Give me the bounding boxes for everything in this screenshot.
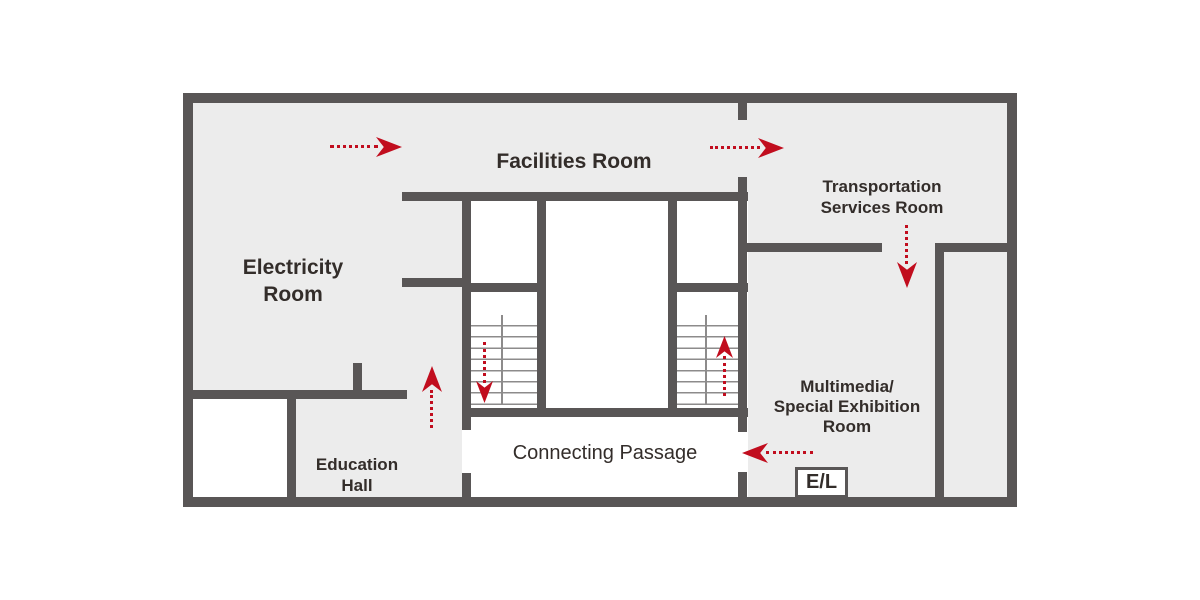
- label-text: Facilities Room: [434, 149, 714, 175]
- wall: [462, 192, 471, 430]
- label-text: Services Room: [782, 197, 982, 218]
- route-arrow-corridor-north: [422, 366, 442, 428]
- label-text: Electricity: [193, 254, 393, 281]
- wall: [537, 192, 546, 417]
- label-text: Room: [757, 417, 937, 437]
- label-education-hall: Education Hall: [287, 454, 427, 496]
- wall: [1007, 93, 1017, 507]
- label-electricity-room: Electricity Room: [193, 254, 393, 308]
- wall: [462, 408, 748, 417]
- storage-room-area: [193, 399, 287, 497]
- wall: [462, 473, 471, 497]
- wall: [353, 363, 362, 399]
- left-staircase-stringer: [501, 315, 503, 405]
- route-arrow-to-transportation-east: [710, 138, 784, 158]
- route-arrow-into-passage-west: [742, 443, 813, 463]
- wall: [738, 177, 747, 432]
- label-text: Room: [193, 281, 393, 308]
- elevator-label: E/L: [806, 471, 837, 494]
- wall: [668, 283, 748, 292]
- label-text: Hall: [287, 475, 427, 496]
- wall: [747, 243, 882, 252]
- wall: [183, 390, 407, 399]
- label-text: Special Exhibition: [757, 397, 937, 417]
- wall: [183, 497, 1017, 507]
- wall: [738, 103, 747, 120]
- wall: [462, 283, 546, 292]
- wall: [935, 243, 1017, 252]
- wall: [402, 278, 471, 287]
- label-facilities-room: Facilities Room: [434, 149, 714, 175]
- label-multimedia-special-exhibition-room: Multimedia/ Special Exhibition Room: [757, 377, 937, 437]
- label-connecting-passage: Connecting Passage: [462, 441, 748, 466]
- label-text: Education: [287, 454, 427, 475]
- floor-plan: Facilities Room Electricity Room Transpo…: [0, 0, 1200, 600]
- wall: [668, 192, 677, 417]
- wall: [738, 472, 747, 497]
- route-arrow-right-staircase-up: [716, 336, 733, 396]
- wall: [183, 93, 193, 507]
- wall: [935, 243, 944, 497]
- route-arrow-transportation-south: [897, 225, 917, 288]
- elevator-box: E/L: [795, 467, 848, 498]
- route-arrow-facilities-east: [330, 137, 402, 157]
- route-arrow-left-staircase-down: [476, 342, 493, 403]
- label-text: Multimedia/: [757, 377, 937, 397]
- wall: [183, 93, 1017, 103]
- label-transportation-services-room: Transportation Services Room: [782, 176, 982, 218]
- label-text: Transportation: [782, 176, 982, 197]
- right-staircase-stringer: [705, 315, 707, 405]
- wall: [402, 192, 748, 201]
- label-text: Connecting Passage: [462, 441, 748, 466]
